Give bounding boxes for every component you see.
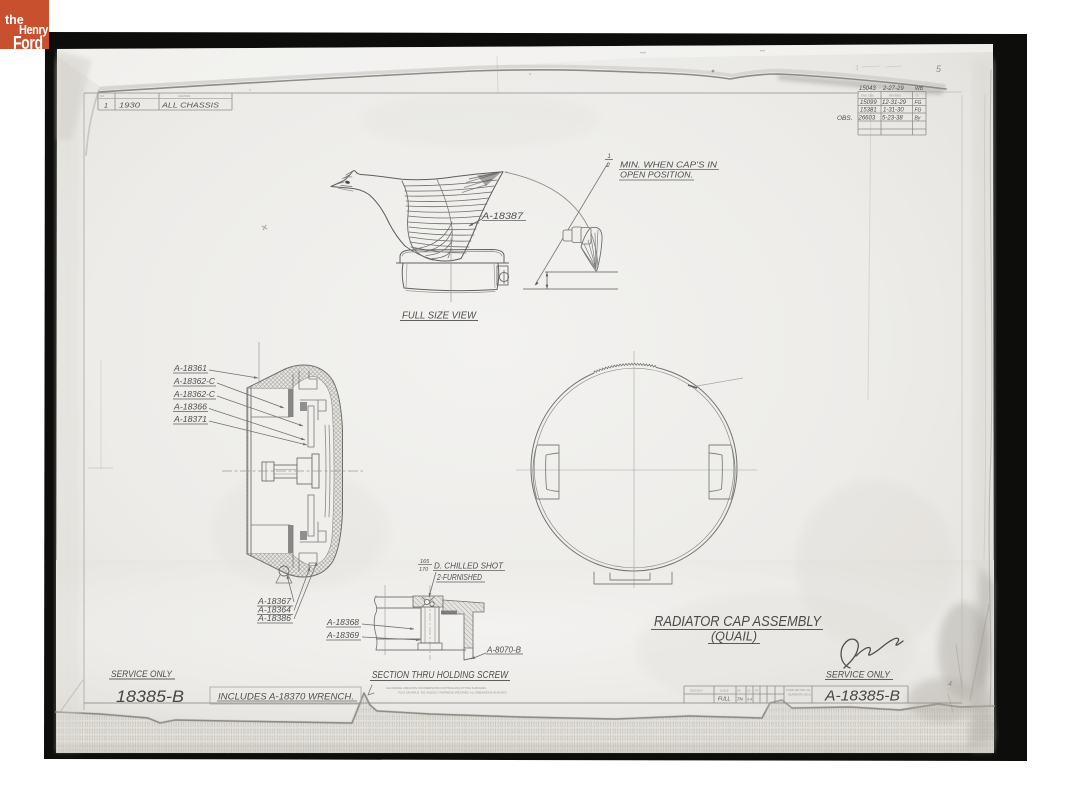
svg-text:15043: 15043 <box>859 86 876 92</box>
svg-text:1-31-30: 1-31-30 <box>883 108 904 114</box>
svg-text:FORD MOTOR CO.: FORD MOTOR CO. <box>786 688 811 692</box>
svg-text:1: 1 <box>855 65 859 72</box>
svg-text:NO.: NO. <box>100 94 105 98</box>
svg-text:A-18371: A-18371 <box>173 415 207 424</box>
svg-text:2-27-29: 2-27-29 <box>882 86 904 92</box>
svg-text:TR.: TR. <box>755 690 759 693</box>
svg-text:SERVICE ONLY: SERVICE ONLY <box>111 669 173 679</box>
svg-text:CHASSIS: CHASSIS <box>178 94 190 98</box>
svg-text:REVISED: REVISED <box>889 94 901 98</box>
svg-text:PLUS OR MINUS .002 UNLESS OTHE: PLUS OR MINUS .002 UNLESS OTHERWISE SPEC… <box>398 691 507 695</box>
svg-text:A-18362-C: A-18362-C <box>173 390 215 399</box>
svg-text:DEARBORN, MICH.: DEARBORN, MICH. <box>788 693 812 697</box>
svg-text:5-23-38: 5-23-38 <box>882 116 903 122</box>
svg-text:2: 2 <box>606 163 611 169</box>
svg-text:DR.: DR. <box>737 690 741 693</box>
svg-text:SERVICE ONLY: SERVICE ONLY <box>826 670 891 681</box>
svg-text:OBS.: OBS. <box>837 115 853 122</box>
svg-text:CK.: CK. <box>747 690 751 693</box>
svg-text:RADIATOR CAP ASSEMBLY: RADIATOR CAP ASSEMBLY <box>654 614 822 630</box>
svg-text:MIN. WHEN CAP'S IN: MIN. WHEN CAP'S IN <box>620 161 717 170</box>
svg-text:SCALE: SCALE <box>720 689 729 693</box>
svg-text:A-18366: A-18366 <box>173 403 208 412</box>
svg-text:A-8070-B: A-8070-B <box>486 645 521 655</box>
svg-text:12-31-29: 12-31-29 <box>882 100 907 106</box>
svg-text:FG: FG <box>915 100 922 106</box>
svg-text:1: 1 <box>104 103 108 110</box>
svg-text:D. CHILLED SHOT: D. CHILLED SHOT <box>434 562 504 571</box>
svg-text:2-FURNISHED: 2-FURNISHED <box>436 573 482 582</box>
svg-text:FULL: FULL <box>718 697 730 703</box>
svg-text:15099: 15099 <box>860 100 877 106</box>
svg-text:165: 165 <box>420 559 430 565</box>
svg-text:OPEN POSITION.: OPEN POSITION. <box>620 171 693 180</box>
svg-text:18385-B: 18385-B <box>116 688 184 706</box>
svg-text:A-18386: A-18386 <box>257 614 292 623</box>
svg-text:A-18361: A-18361 <box>173 364 207 373</box>
svg-text:INCLUDES A-18370 WRENCH.: INCLUDES A-18370 WRENCH. <box>218 692 354 702</box>
svg-text:170: 170 <box>419 567 429 573</box>
svg-text:A-18362-C: A-18362-C <box>173 377 215 386</box>
svg-text:ENG.CHG: ENG.CHG <box>861 94 874 98</box>
svg-text:7N: 7N <box>737 697 744 702</box>
svg-text:A-18368: A-18368 <box>326 618 360 627</box>
svg-text:SECTION THRU HOLDING SCREW: SECTION THRU HOLDING SCREW <box>372 670 509 681</box>
svg-text:CK.: CK. <box>915 94 920 98</box>
svg-text:WB: WB <box>915 86 924 92</box>
svg-text:1930: 1930 <box>119 103 140 110</box>
svg-text:ALL CHASSIS: ALL CHASSIS <box>161 103 220 110</box>
svg-text:By: By <box>915 116 921 122</box>
svg-text:DECISION: DECISION <box>690 689 703 693</box>
svg-text:FG: FG <box>915 108 922 114</box>
svg-text:26603: 26603 <box>858 116 876 122</box>
svg-text:15381: 15381 <box>860 108 877 114</box>
svg-text:A-18385-B: A-18385-B <box>824 688 900 705</box>
svg-text:4.4: 4.4 <box>747 698 752 702</box>
svg-text:(QUAIL): (QUAIL) <box>711 630 757 644</box>
svg-text:FULL SIZE VIEW: FULL SIZE VIEW <box>402 310 477 322</box>
svg-text:4: 4 <box>948 681 952 688</box>
svg-text:A-18369: A-18369 <box>326 631 360 640</box>
svg-text:A-18387: A-18387 <box>481 211 524 221</box>
svg-text:ALLOWABLE VARIATION ON DIMENSI: ALLOWABLE VARIATION ON DIMENSIONS CONTRO… <box>386 686 486 690</box>
